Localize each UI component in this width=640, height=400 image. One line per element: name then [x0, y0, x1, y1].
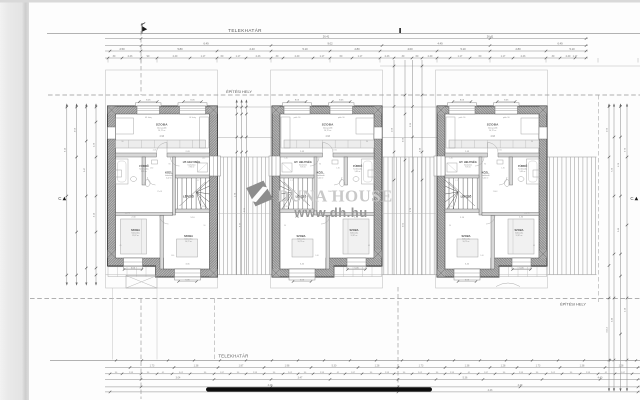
- svg-text:90: 90: [449, 225, 451, 227]
- svg-text:7,95 m²: 7,95 m²: [465, 166, 471, 169]
- svg-text:26.41: 26.41: [487, 35, 494, 39]
- svg-text:5,85 m²: 5,85 m²: [355, 170, 361, 173]
- svg-text:2.20: 2.20: [449, 206, 452, 208]
- svg-text:2.05: 2.05: [153, 150, 157, 152]
- svg-text:1.98: 1.98: [285, 364, 290, 367]
- svg-text:ÉPÍTÉSI HELY: ÉPÍTÉSI HELY: [560, 302, 586, 307]
- svg-text:1.38: 1.38: [465, 364, 470, 367]
- svg-text:90: 90: [169, 164, 171, 166]
- svg-text:90: 90: [531, 141, 533, 143]
- svg-text:TELEKHATÁR: TELEKHATÁR: [218, 354, 248, 359]
- svg-text:1.28: 1.28: [375, 364, 380, 367]
- svg-text:2.20: 2.20: [202, 206, 205, 208]
- svg-text:DUNA HOUSE: DUNA HOUSE: [277, 187, 393, 206]
- svg-text:1.17: 1.17: [501, 55, 506, 58]
- svg-text:1.17: 1.17: [458, 55, 463, 58]
- svg-text:90: 90: [366, 141, 368, 143]
- svg-text:1.60: 1.60: [171, 255, 174, 257]
- svg-text:párk. 90: párk. 90: [338, 117, 345, 119]
- svg-text:2.40: 2.40: [295, 55, 300, 58]
- svg-text:párk. 90: párk. 90: [459, 117, 466, 119]
- svg-text:17x18: 17x18: [493, 191, 498, 193]
- svg-text:1.17: 1.17: [320, 55, 325, 58]
- svg-text:90: 90: [284, 225, 286, 227]
- svg-text:1.28: 1.28: [501, 364, 506, 367]
- svg-text:1.40: 1.40: [202, 158, 205, 160]
- svg-text:1.40: 1.40: [284, 158, 287, 160]
- svg-text:2.43: 2.43: [385, 55, 390, 58]
- svg-text:90: 90: [319, 164, 321, 166]
- svg-text:1.30: 1.30: [501, 168, 504, 170]
- svg-text:SZOBA: SZOBA: [487, 123, 499, 127]
- svg-text:45: 45: [533, 245, 535, 247]
- svg-text:www.dh.hu: www.dh.hu: [293, 205, 367, 220]
- svg-text:2.40: 2.40: [566, 55, 571, 58]
- svg-text:2.50: 2.50: [119, 47, 125, 51]
- svg-text:5.10: 5.10: [460, 47, 466, 51]
- svg-text:14,72 m²: 14,72 m²: [489, 129, 497, 132]
- svg-text:1.17: 1.17: [201, 55, 206, 58]
- svg-text:párk. 90: párk. 90: [145, 117, 152, 119]
- svg-text:5.10: 5.10: [569, 47, 575, 51]
- svg-text:1.17: 1.17: [236, 55, 241, 58]
- svg-text:10,72 m²: 10,72 m²: [462, 240, 469, 243]
- svg-text:SZOBA: SZOBA: [184, 234, 193, 238]
- svg-text:4.49: 4.49: [437, 42, 443, 46]
- svg-text:14,72 m²: 14,72 m²: [158, 129, 166, 132]
- svg-text:4.43: 4.43: [488, 389, 493, 392]
- svg-text:2.43: 2.43: [128, 55, 133, 58]
- svg-text:SZOBA: SZOBA: [461, 234, 470, 238]
- svg-text:90: 90: [122, 141, 124, 143]
- svg-text:2.20: 2.20: [284, 206, 287, 208]
- svg-text:2.40: 2.40: [428, 55, 433, 58]
- svg-text:5,42 m²: 5,42 m²: [482, 176, 488, 179]
- svg-text:1.40: 1.40: [449, 158, 452, 160]
- svg-text:3.47: 3.47: [298, 376, 303, 379]
- svg-text:1.73: 1.73: [419, 364, 424, 367]
- svg-text:4.93: 4.93: [490, 136, 495, 138]
- svg-text:45: 45: [120, 245, 122, 247]
- svg-text:párk. 90: párk. 90: [503, 117, 510, 119]
- svg-text:pad 90: pad 90: [125, 213, 130, 215]
- svg-text:1.38: 1.38: [194, 364, 199, 367]
- svg-text:SZOBA: SZOBA: [514, 228, 523, 232]
- svg-text:10,72 m²: 10,72 m²: [185, 240, 192, 243]
- svg-text:SZOBA: SZOBA: [156, 123, 168, 127]
- svg-text:90: 90: [484, 164, 486, 166]
- svg-text:45: 45: [368, 245, 370, 247]
- svg-text:7,95 m²: 7,95 m²: [188, 166, 194, 169]
- svg-text:17x18: 17x18: [157, 191, 162, 193]
- svg-text:2.43: 2.43: [256, 55, 261, 58]
- svg-text:SZOBA: SZOBA: [296, 234, 305, 238]
- svg-text:SZOBA: SZOBA: [322, 123, 334, 127]
- svg-text:2.05: 2.05: [498, 150, 502, 152]
- svg-text:TELEKHATÁR: TELEKHATÁR: [228, 27, 262, 33]
- svg-text:5,42 m²: 5,42 m²: [317, 176, 323, 179]
- svg-text:3.04: 3.04: [176, 376, 181, 379]
- svg-text:5.36: 5.36: [463, 376, 468, 379]
- svg-text:1.87: 1.87: [239, 364, 244, 367]
- svg-text:12,87 m²: 12,87 m²: [350, 234, 357, 237]
- svg-text:ÉPÍTÉSI HELY: ÉPÍTÉSI HELY: [226, 89, 252, 94]
- svg-text:14,72 m²: 14,72 m²: [324, 129, 332, 132]
- svg-text:10,72 m²: 10,72 m²: [297, 240, 304, 243]
- svg-text:SZOBA: SZOBA: [349, 228, 358, 232]
- svg-text:90: 90: [204, 225, 206, 227]
- svg-text:5.10: 5.10: [302, 47, 308, 51]
- svg-text:párk. 90: párk. 90: [189, 117, 196, 119]
- svg-text:C: C: [58, 196, 61, 201]
- svg-text:4.00: 4.00: [407, 47, 413, 51]
- svg-text:pad 90: pad 90: [524, 213, 529, 215]
- svg-text:1.28: 1.28: [619, 364, 624, 367]
- svg-text:2.40: 2.40: [173, 55, 178, 58]
- svg-text:26.41: 26.41: [323, 35, 330, 39]
- svg-text:4.49: 4.49: [518, 384, 523, 387]
- svg-text:4.93: 4.93: [160, 136, 165, 138]
- svg-text:2.80: 2.80: [354, 47, 360, 51]
- svg-text:6.49: 6.49: [557, 42, 563, 46]
- svg-text:2.80: 2.80: [515, 47, 521, 51]
- svg-text:1.30: 1.30: [150, 168, 153, 170]
- svg-text:2.43: 2.43: [521, 55, 526, 58]
- svg-text:párk. 90: párk. 90: [294, 117, 301, 119]
- svg-text:2.05: 2.05: [333, 150, 337, 152]
- svg-text:1.17: 1.17: [455, 180, 459, 182]
- svg-text:5.80: 5.80: [177, 47, 183, 51]
- svg-text:1.60: 1.60: [315, 255, 318, 257]
- svg-text:12,87 m²: 12,87 m²: [132, 234, 139, 237]
- svg-text:5,85 m²: 5,85 m²: [520, 170, 526, 173]
- svg-text:7,95 m²: 7,95 m²: [300, 166, 306, 169]
- svg-text:C: C: [630, 196, 633, 201]
- svg-text:5,42 m²: 5,42 m²: [166, 176, 172, 179]
- svg-text:1.38: 1.38: [580, 364, 585, 367]
- svg-text:4.40: 4.40: [598, 376, 603, 379]
- svg-text:1.73: 1.73: [150, 364, 155, 367]
- svg-text:1.17: 1.17: [358, 55, 363, 58]
- svg-text:1.17: 1.17: [573, 55, 578, 58]
- svg-text:1.17: 1.17: [196, 180, 200, 182]
- svg-text:1.30: 1.30: [336, 168, 339, 170]
- svg-text:5,85 m²: 5,85 m²: [141, 170, 147, 173]
- svg-text:1.17: 1.17: [290, 180, 294, 182]
- svg-text:2.43: 2.43: [249, 47, 255, 51]
- svg-text:9.02: 9.02: [327, 42, 333, 46]
- svg-text:12,87 m²: 12,87 m²: [515, 234, 522, 237]
- svg-text:4.49: 4.49: [268, 384, 273, 387]
- svg-text:31.14: 31.14: [607, 326, 609, 332]
- svg-text:1.73: 1.73: [536, 364, 541, 367]
- svg-text:4.93: 4.93: [325, 136, 330, 138]
- svg-text:SZOBA: SZOBA: [131, 228, 140, 232]
- svg-text:1.60: 1.60: [480, 255, 483, 257]
- svg-text:6.49: 6.49: [203, 42, 209, 46]
- svg-text:5.30: 5.30: [332, 364, 337, 367]
